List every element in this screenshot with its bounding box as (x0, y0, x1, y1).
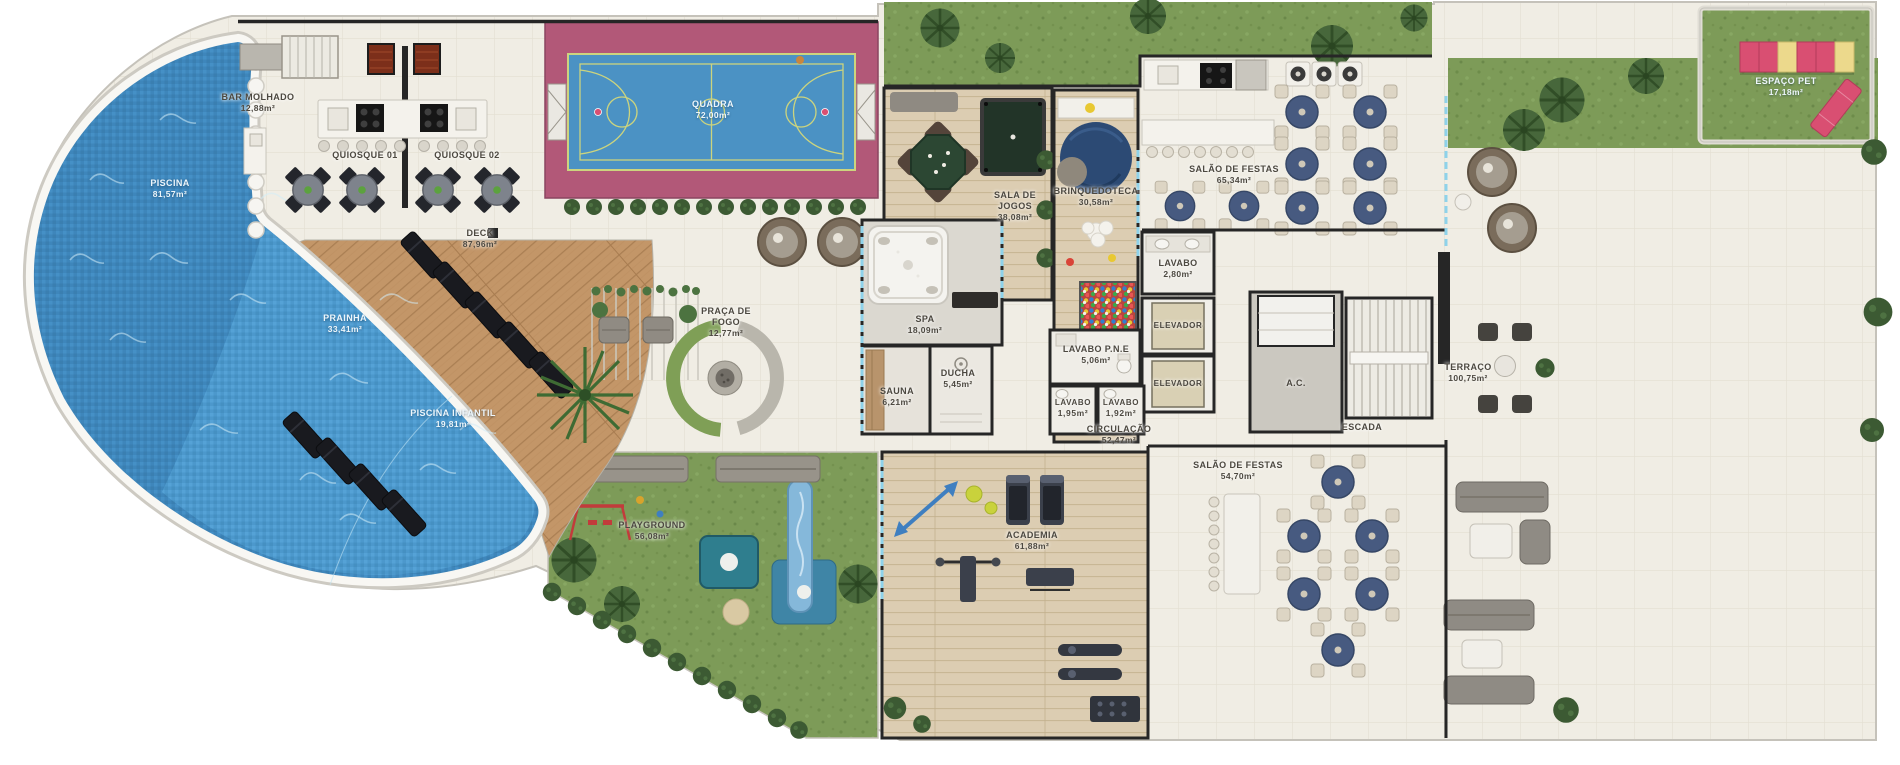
ball (796, 56, 804, 64)
sauna-room (862, 346, 930, 434)
ball-pit (1080, 282, 1136, 334)
lavabo-2 (1050, 386, 1096, 434)
ac-room (1250, 292, 1342, 432)
floorplan-svg (0, 0, 1900, 765)
stairs (1346, 298, 1432, 418)
floorplan-leisure-area: PISCINA81,57m² BAR MOLHADO12,88m² QUIOSQ… (0, 0, 1900, 765)
exercise-ball (966, 486, 982, 502)
playground-area (543, 452, 878, 739)
academia-room (882, 452, 1148, 738)
dumbbell-rack (1090, 696, 1140, 722)
sofa (890, 92, 958, 112)
grill-2 (414, 44, 440, 74)
ducha-room (930, 346, 992, 434)
toy-shelf (1058, 98, 1134, 118)
sink-2 (456, 108, 476, 130)
lavabo-3 (1098, 386, 1144, 434)
elevator-1 (1142, 298, 1214, 354)
lavabo-1 (1142, 232, 1214, 294)
palm-tree (537, 347, 633, 443)
sports-court (545, 22, 878, 198)
cooktop-2 (420, 104, 448, 132)
pet-agility-hurdle (1740, 42, 1854, 75)
treadmill (1006, 475, 1030, 525)
espaco-pet-area (1700, 8, 1872, 142)
spa-bench (952, 292, 998, 308)
lavabo-pne (1050, 330, 1140, 384)
spa-room (862, 220, 1002, 345)
sink-1 (328, 108, 348, 130)
wall-pillar (1438, 252, 1450, 364)
pool-table (982, 100, 1044, 174)
buffet-counter (1224, 494, 1260, 594)
counter-stools (319, 141, 486, 152)
kitchen-island (1142, 120, 1274, 145)
grill-1 (368, 44, 394, 74)
elevator-2 (1142, 356, 1214, 412)
cooktop-1 (356, 104, 384, 132)
hot-tub (868, 226, 948, 304)
treadmill (1040, 475, 1064, 525)
